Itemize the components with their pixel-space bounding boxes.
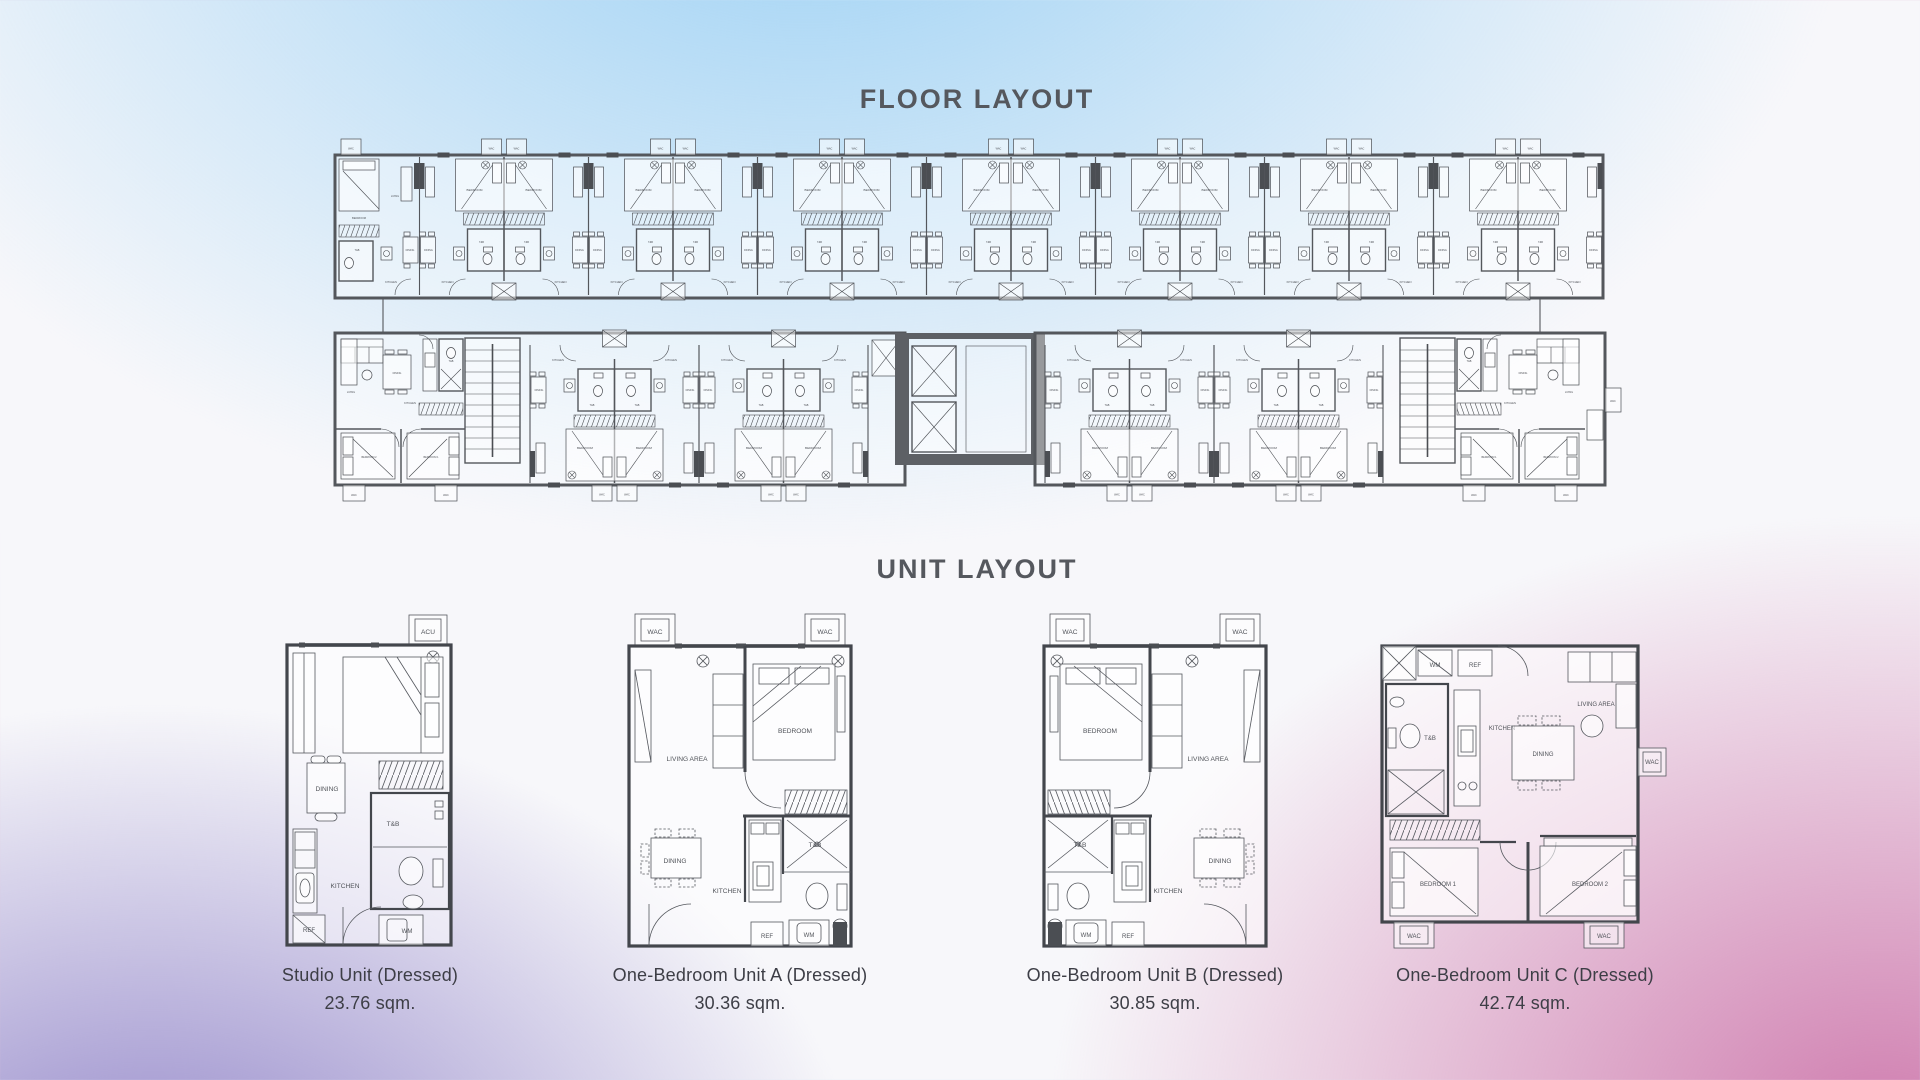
svg-text:WAC: WAC bbox=[647, 629, 662, 636]
svg-text:BEDROOM: BEDROOM bbox=[1083, 728, 1117, 735]
unit-name: One-Bedroom Unit B (Dressed) bbox=[995, 962, 1315, 990]
svg-text:LIVING: LIVING bbox=[347, 391, 355, 394]
floor-plan: WAC WAC BEDROOM BEDROOM T&B T&B DINING bbox=[300, 110, 1660, 530]
unit-area: 42.74 sqm. bbox=[1365, 990, 1685, 1018]
svg-text:WAC: WAC bbox=[1407, 934, 1421, 940]
svg-text:T&B: T&B bbox=[1424, 736, 1436, 742]
svg-text:BEDROOM 2: BEDROOM 2 bbox=[361, 456, 377, 459]
unit-caption: One-Bedroom Unit B (Dressed) 30.85 sqm. bbox=[995, 962, 1315, 1018]
svg-text:WM: WM bbox=[402, 929, 413, 935]
svg-text:DINING: DINING bbox=[1533, 752, 1554, 758]
unit-area: 30.36 sqm. bbox=[580, 990, 900, 1018]
svg-text:KITCHEN: KITCHEN bbox=[713, 888, 742, 895]
bottom-wing-left: LIVING DINING KITCHEN T&B BEDROOM 2 BEDR… bbox=[335, 330, 905, 501]
one-bedroom-b-plan: WAC WAC LIVING AREA BEDROOM DINING KITCH… bbox=[1044, 614, 1266, 946]
unit-name: One-Bedroom Unit C (Dressed) bbox=[1365, 962, 1685, 990]
svg-text:WM: WM bbox=[804, 933, 815, 939]
unit-name: Studio Unit (Dressed) bbox=[210, 962, 530, 990]
svg-text:T&B: T&B bbox=[1467, 360, 1472, 363]
bottom-wing-right: LIVING DINING KITCHEN T&B BEDROOM 2 BEDR… bbox=[1035, 330, 1621, 501]
svg-text:REF: REF bbox=[761, 934, 773, 940]
svg-text:LIVING AREA: LIVING AREA bbox=[666, 756, 708, 763]
svg-text:WAC: WAC bbox=[1062, 629, 1077, 636]
svg-text:WAC: WAC bbox=[817, 629, 832, 636]
svg-text:DINING: DINING bbox=[315, 786, 338, 793]
svg-text:LIVING: LIVING bbox=[1565, 391, 1573, 394]
svg-text:T&B: T&B bbox=[1074, 842, 1087, 849]
svg-text:T&B: T&B bbox=[387, 821, 400, 828]
unit-plans: ACU DINING T&B KITCHEN REF WM WAC bbox=[270, 605, 1680, 965]
svg-text:KITCHEN: KITCHEN bbox=[1154, 888, 1183, 895]
svg-text:KITCHEN: KITCHEN bbox=[1489, 726, 1515, 732]
svg-text:LIVING AREA: LIVING AREA bbox=[1577, 702, 1614, 708]
svg-text:WAC: WAC bbox=[443, 494, 449, 497]
studio-unit-plan: ACU DINING T&B KITCHEN REF WM bbox=[287, 615, 451, 945]
svg-text:LIVING AREA: LIVING AREA bbox=[1187, 756, 1229, 763]
svg-text:BEDROOM: BEDROOM bbox=[778, 728, 812, 735]
svg-text:BEDROOM 1: BEDROOM 1 bbox=[1420, 882, 1457, 888]
stairwell bbox=[1400, 338, 1455, 463]
unit-layout-title: UNIT LAYOUT bbox=[17, 554, 1920, 585]
svg-text:T&B: T&B bbox=[809, 842, 822, 849]
unit-caption: Studio Unit (Dressed) 23.76 sqm. bbox=[210, 962, 530, 1018]
svg-text:BEDROOM 1: BEDROOM 1 bbox=[1481, 456, 1497, 459]
svg-text:WM: WM bbox=[1081, 933, 1092, 939]
unit-caption: One-Bedroom Unit C (Dressed) 42.74 sqm. bbox=[1365, 962, 1685, 1018]
svg-text:KITCHEN: KITCHEN bbox=[1504, 401, 1516, 405]
svg-text:BEDROOM 1: BEDROOM 1 bbox=[423, 456, 439, 459]
svg-text:BEDROOM 2: BEDROOM 2 bbox=[1572, 882, 1609, 888]
svg-text:T&B: T&B bbox=[449, 360, 454, 363]
svg-text:WAC: WAC bbox=[1597, 934, 1611, 940]
one-bedroom-a-plan: WAC WAC LIVING AREA BEDROOM DINING KITCH… bbox=[629, 614, 851, 946]
unit-name: One-Bedroom Unit A (Dressed) bbox=[580, 962, 900, 990]
svg-text:REF: REF bbox=[1469, 663, 1481, 669]
svg-text:REF: REF bbox=[1122, 934, 1134, 940]
floor-plan-page: { "page": { "floor_title": "FLOOR LAYOUT… bbox=[0, 0, 1920, 1080]
unit-caption: One-Bedroom Unit A (Dressed) 30.36 sqm. bbox=[580, 962, 900, 1018]
stairwell bbox=[465, 338, 520, 463]
unit-area: 23.76 sqm. bbox=[210, 990, 530, 1018]
svg-text:WAC: WAC bbox=[1232, 629, 1247, 636]
svg-text:WAC: WAC bbox=[1645, 760, 1659, 766]
svg-text:WAC: WAC bbox=[1610, 400, 1616, 403]
svg-text:DINING: DINING bbox=[663, 858, 686, 865]
svg-text:KITCHEN: KITCHEN bbox=[331, 883, 360, 890]
one-bedroom-c-plan: WM REF T&B KITCHEN DINING LIVING AREA WA… bbox=[1382, 646, 1666, 948]
svg-text:KITCHEN: KITCHEN bbox=[404, 401, 416, 405]
svg-text:BEDROOM 2: BEDROOM 2 bbox=[1543, 456, 1559, 459]
svg-text:DINING: DINING bbox=[393, 372, 402, 375]
unit-area: 30.85 sqm. bbox=[995, 990, 1315, 1018]
svg-text:ACU: ACU bbox=[421, 629, 435, 636]
svg-text:WAC: WAC bbox=[1471, 494, 1477, 497]
elevator-core bbox=[895, 333, 1045, 465]
top-wing bbox=[335, 139, 1603, 300]
svg-text:WM: WM bbox=[1430, 663, 1441, 669]
svg-text:REF: REF bbox=[303, 928, 315, 934]
svg-text:WAC: WAC bbox=[1563, 494, 1569, 497]
svg-text:DINING: DINING bbox=[1519, 372, 1528, 375]
svg-text:DINING: DINING bbox=[1208, 858, 1231, 865]
svg-text:WAC: WAC bbox=[351, 494, 357, 497]
